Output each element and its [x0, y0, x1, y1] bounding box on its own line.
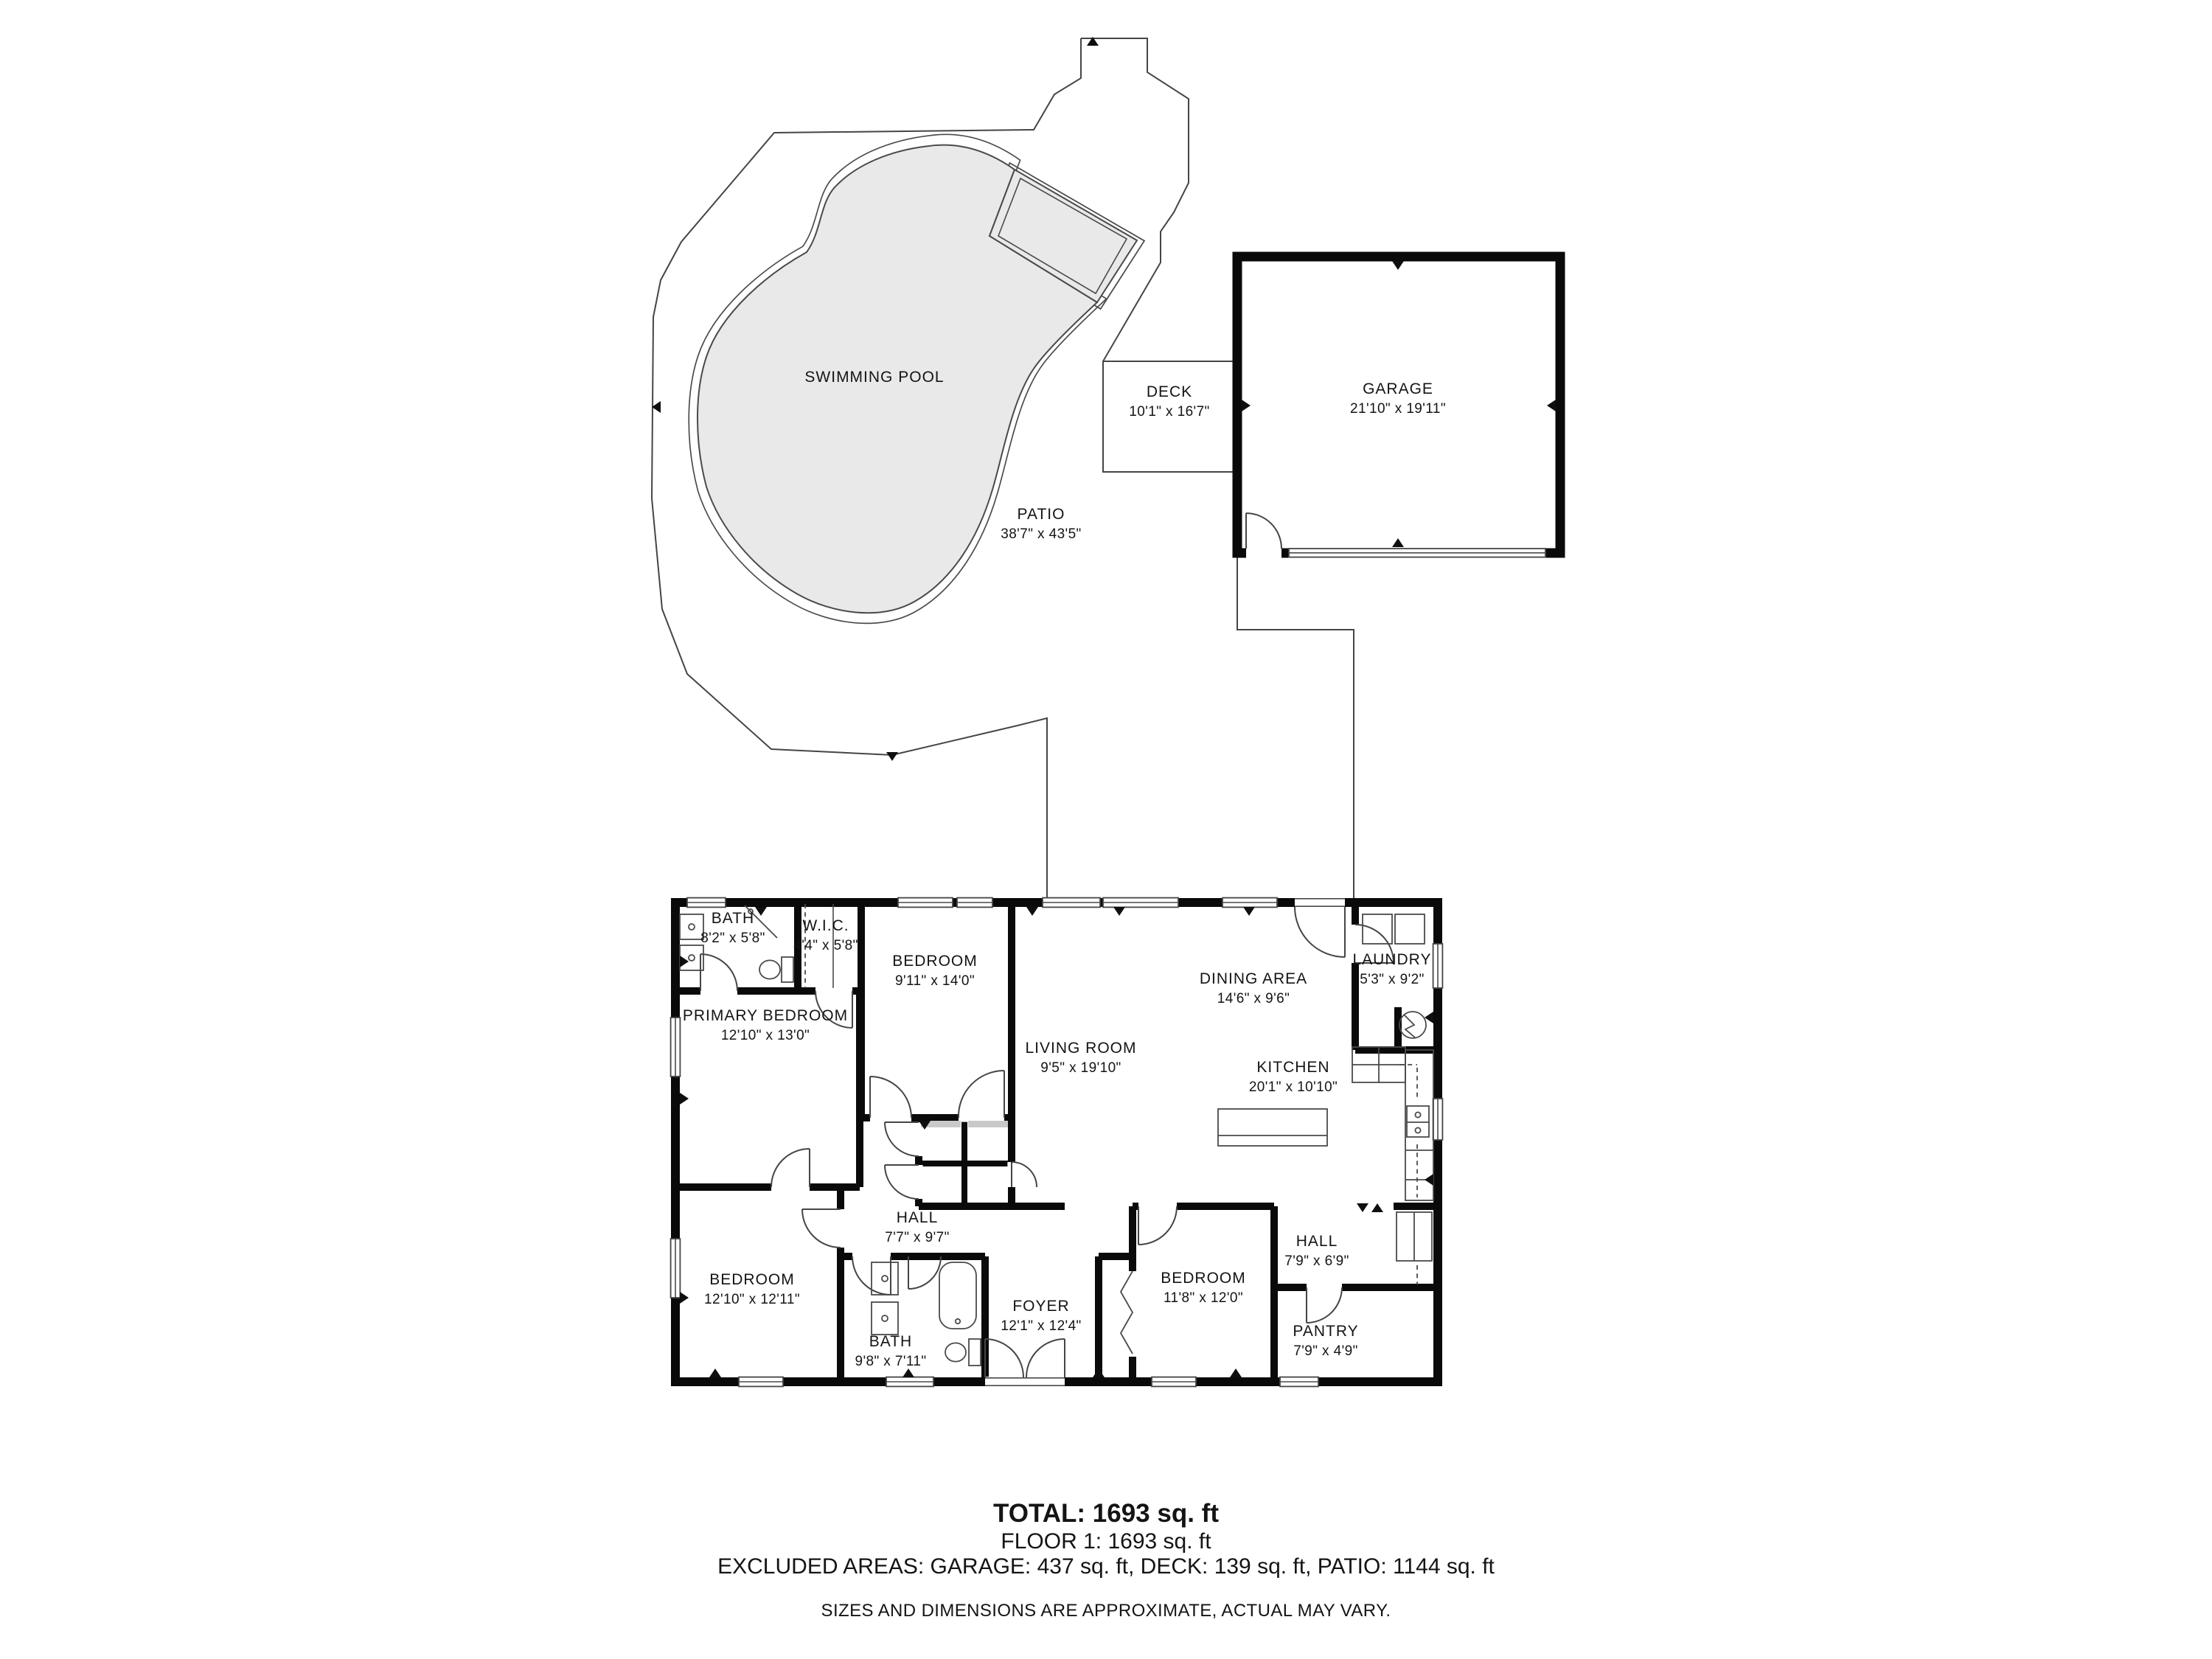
disclaimer: SIZES AND DIMENSIONS ARE APPROXIMATE, AC… — [821, 1601, 1391, 1621]
floor-area: FLOOR 1: 1693 sq. ft — [1001, 1529, 1211, 1554]
floor-plan-page: SWIMMING POOLPATIO38'7" x 43'5"DECK10'1"… — [0, 0, 2212, 1659]
excluded-areas: EXCLUDED AREAS: GARAGE: 437 sq. ft, DECK… — [717, 1554, 1495, 1579]
summary: TOTAL: 1693 sq. ft FLOOR 1: 1693 sq. ft … — [717, 1499, 1495, 1621]
floor-plan-canvas: SWIMMING POOLPATIO38'7" x 43'5"DECK10'1"… — [0, 0, 2212, 1659]
room-label: PATIO38'7" x 43'5" — [1001, 506, 1081, 542]
room-label: DECK10'1" x 16'7" — [1129, 383, 1209, 420]
room-label: SWIMMING POOL — [804, 369, 944, 386]
total-area: TOTAL: 1693 sq. ft — [993, 1499, 1219, 1528]
